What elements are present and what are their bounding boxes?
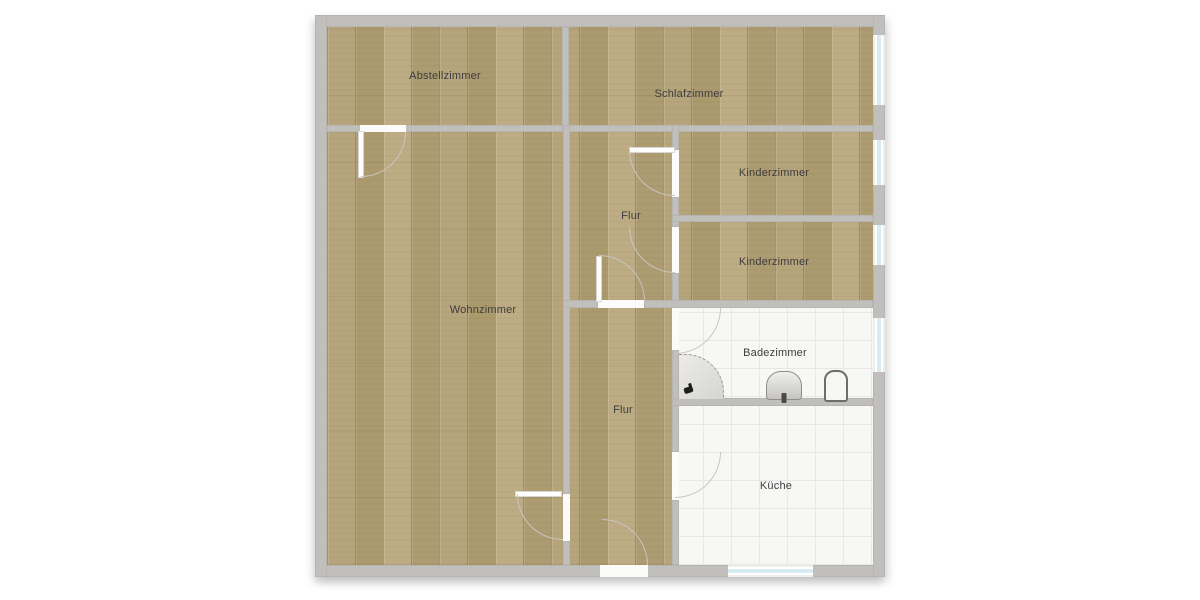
- label-badezimmer: Badezimmer: [743, 347, 807, 359]
- window-kinderzimmer-1[interactable]: [873, 140, 885, 185]
- label-flur-upper: Flur: [621, 210, 641, 222]
- door-flur-connect[interactable]: [598, 300, 644, 308]
- label-wohnzimmer: Wohnzimmer: [450, 304, 517, 316]
- wall-kinder-divider: [672, 215, 873, 222]
- wall-bad-top-b: [644, 300, 873, 308]
- window-kueche[interactable]: [728, 565, 813, 577]
- wall-bad-top-a: [563, 300, 598, 308]
- toilet[interactable]: [824, 370, 848, 402]
- wall-wohn-flur-b: [563, 541, 570, 565]
- door-entrance[interactable]: [600, 565, 648, 577]
- floor-plan-canvas: Abstellzimmer Schlafzimmer Kinderzimmer …: [0, 0, 1200, 600]
- sink-faucet-icon: [782, 393, 787, 403]
- door-wohnzimmer[interactable]: [563, 494, 570, 541]
- wall-flur-right-b: [672, 197, 679, 227]
- label-abstellzimmer: Abstellzimmer: [409, 70, 481, 82]
- label-kinderzimmer-1: Kinderzimmer: [739, 167, 809, 179]
- wall-flur-right-e: [672, 500, 679, 565]
- label-schlafzimmer: Schlafzimmer: [654, 88, 723, 100]
- label-kinderzimmer-2: Kinderzimmer: [739, 256, 809, 268]
- floor-plan: Abstellzimmer Schlafzimmer Kinderzimmer …: [315, 15, 885, 577]
- window-schlafzimmer[interactable]: [873, 35, 885, 105]
- window-badezimmer[interactable]: [873, 318, 885, 372]
- wall-wohn-flur-a: [563, 125, 570, 494]
- label-kueche: Küche: [760, 480, 792, 492]
- door-abstellzimmer[interactable]: [360, 125, 406, 132]
- bathroom-sink[interactable]: [766, 371, 802, 400]
- wall-outer-left: [315, 15, 327, 577]
- window-kinderzimmer-2[interactable]: [873, 225, 885, 265]
- room-schlafzimmer[interactable]: [569, 27, 873, 125]
- wall-outer-top: [315, 15, 885, 27]
- wall-abstell-schlaf: [562, 27, 569, 132]
- wall-h-upper: [327, 125, 873, 132]
- label-flur-lower: Flur: [613, 404, 633, 416]
